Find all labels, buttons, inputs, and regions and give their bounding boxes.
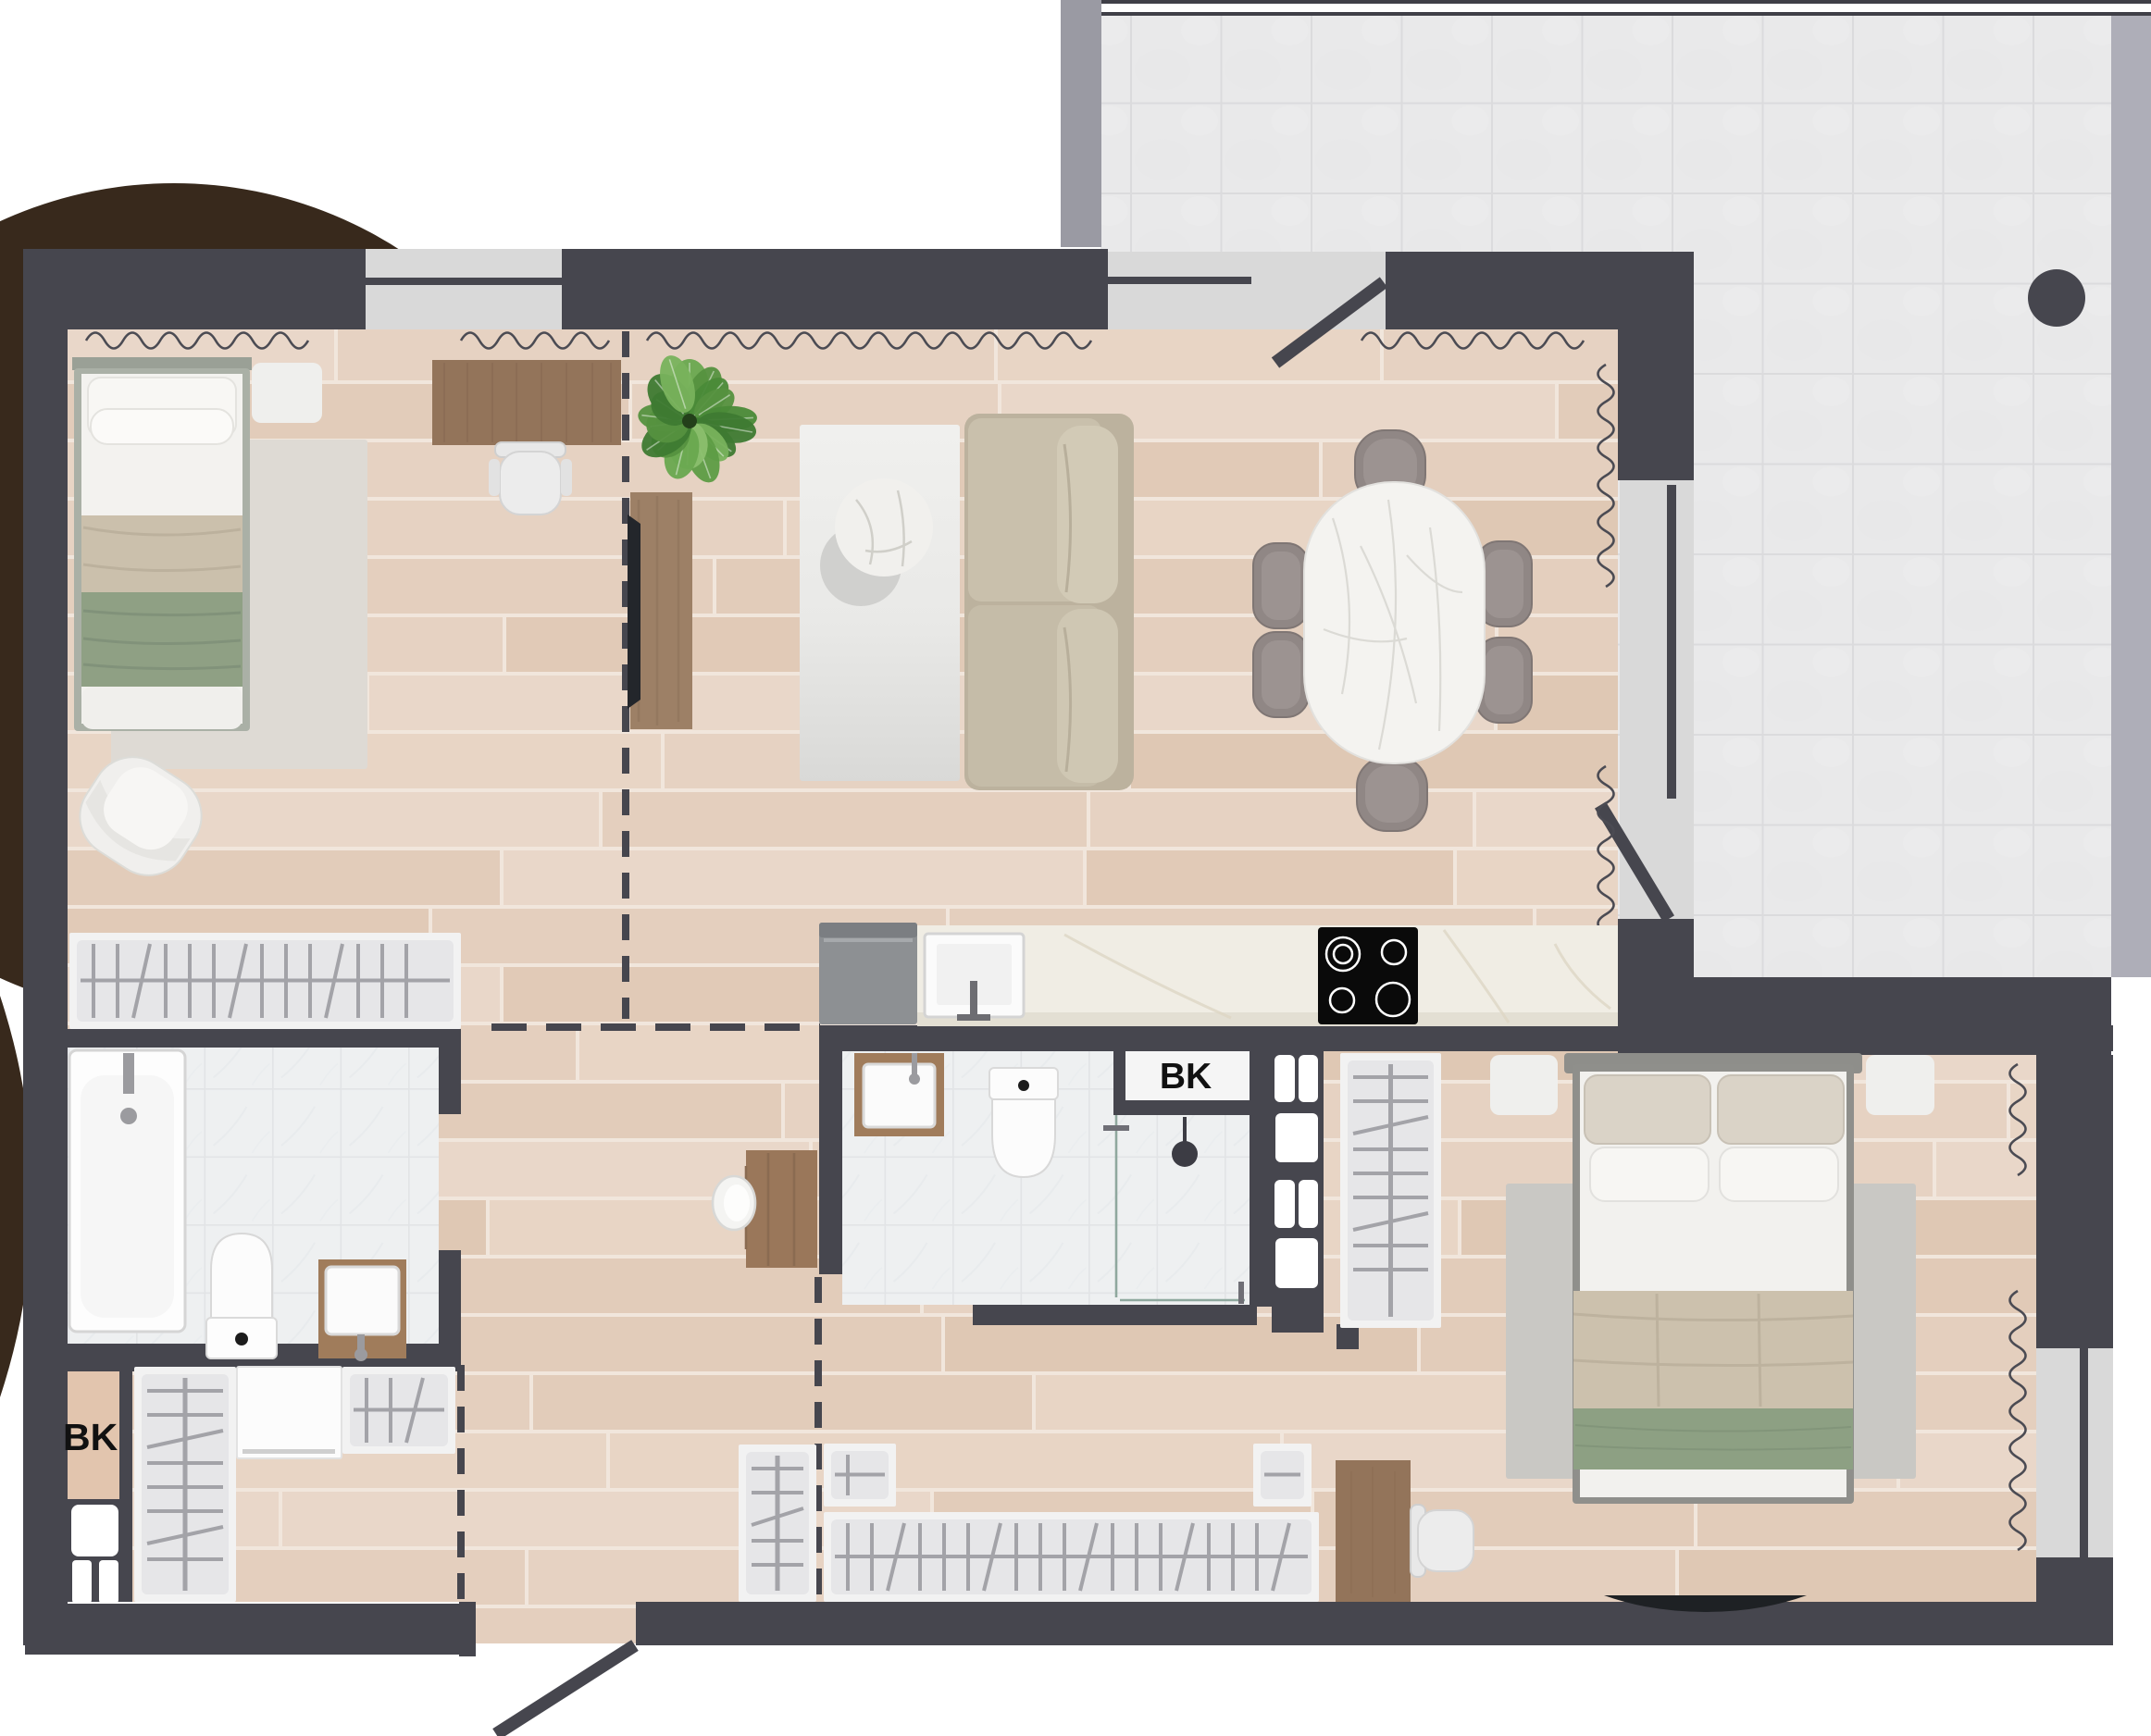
svg-text:BK: BK [1160,1057,1212,1097]
svg-text:BK: BK [63,1416,118,1458]
